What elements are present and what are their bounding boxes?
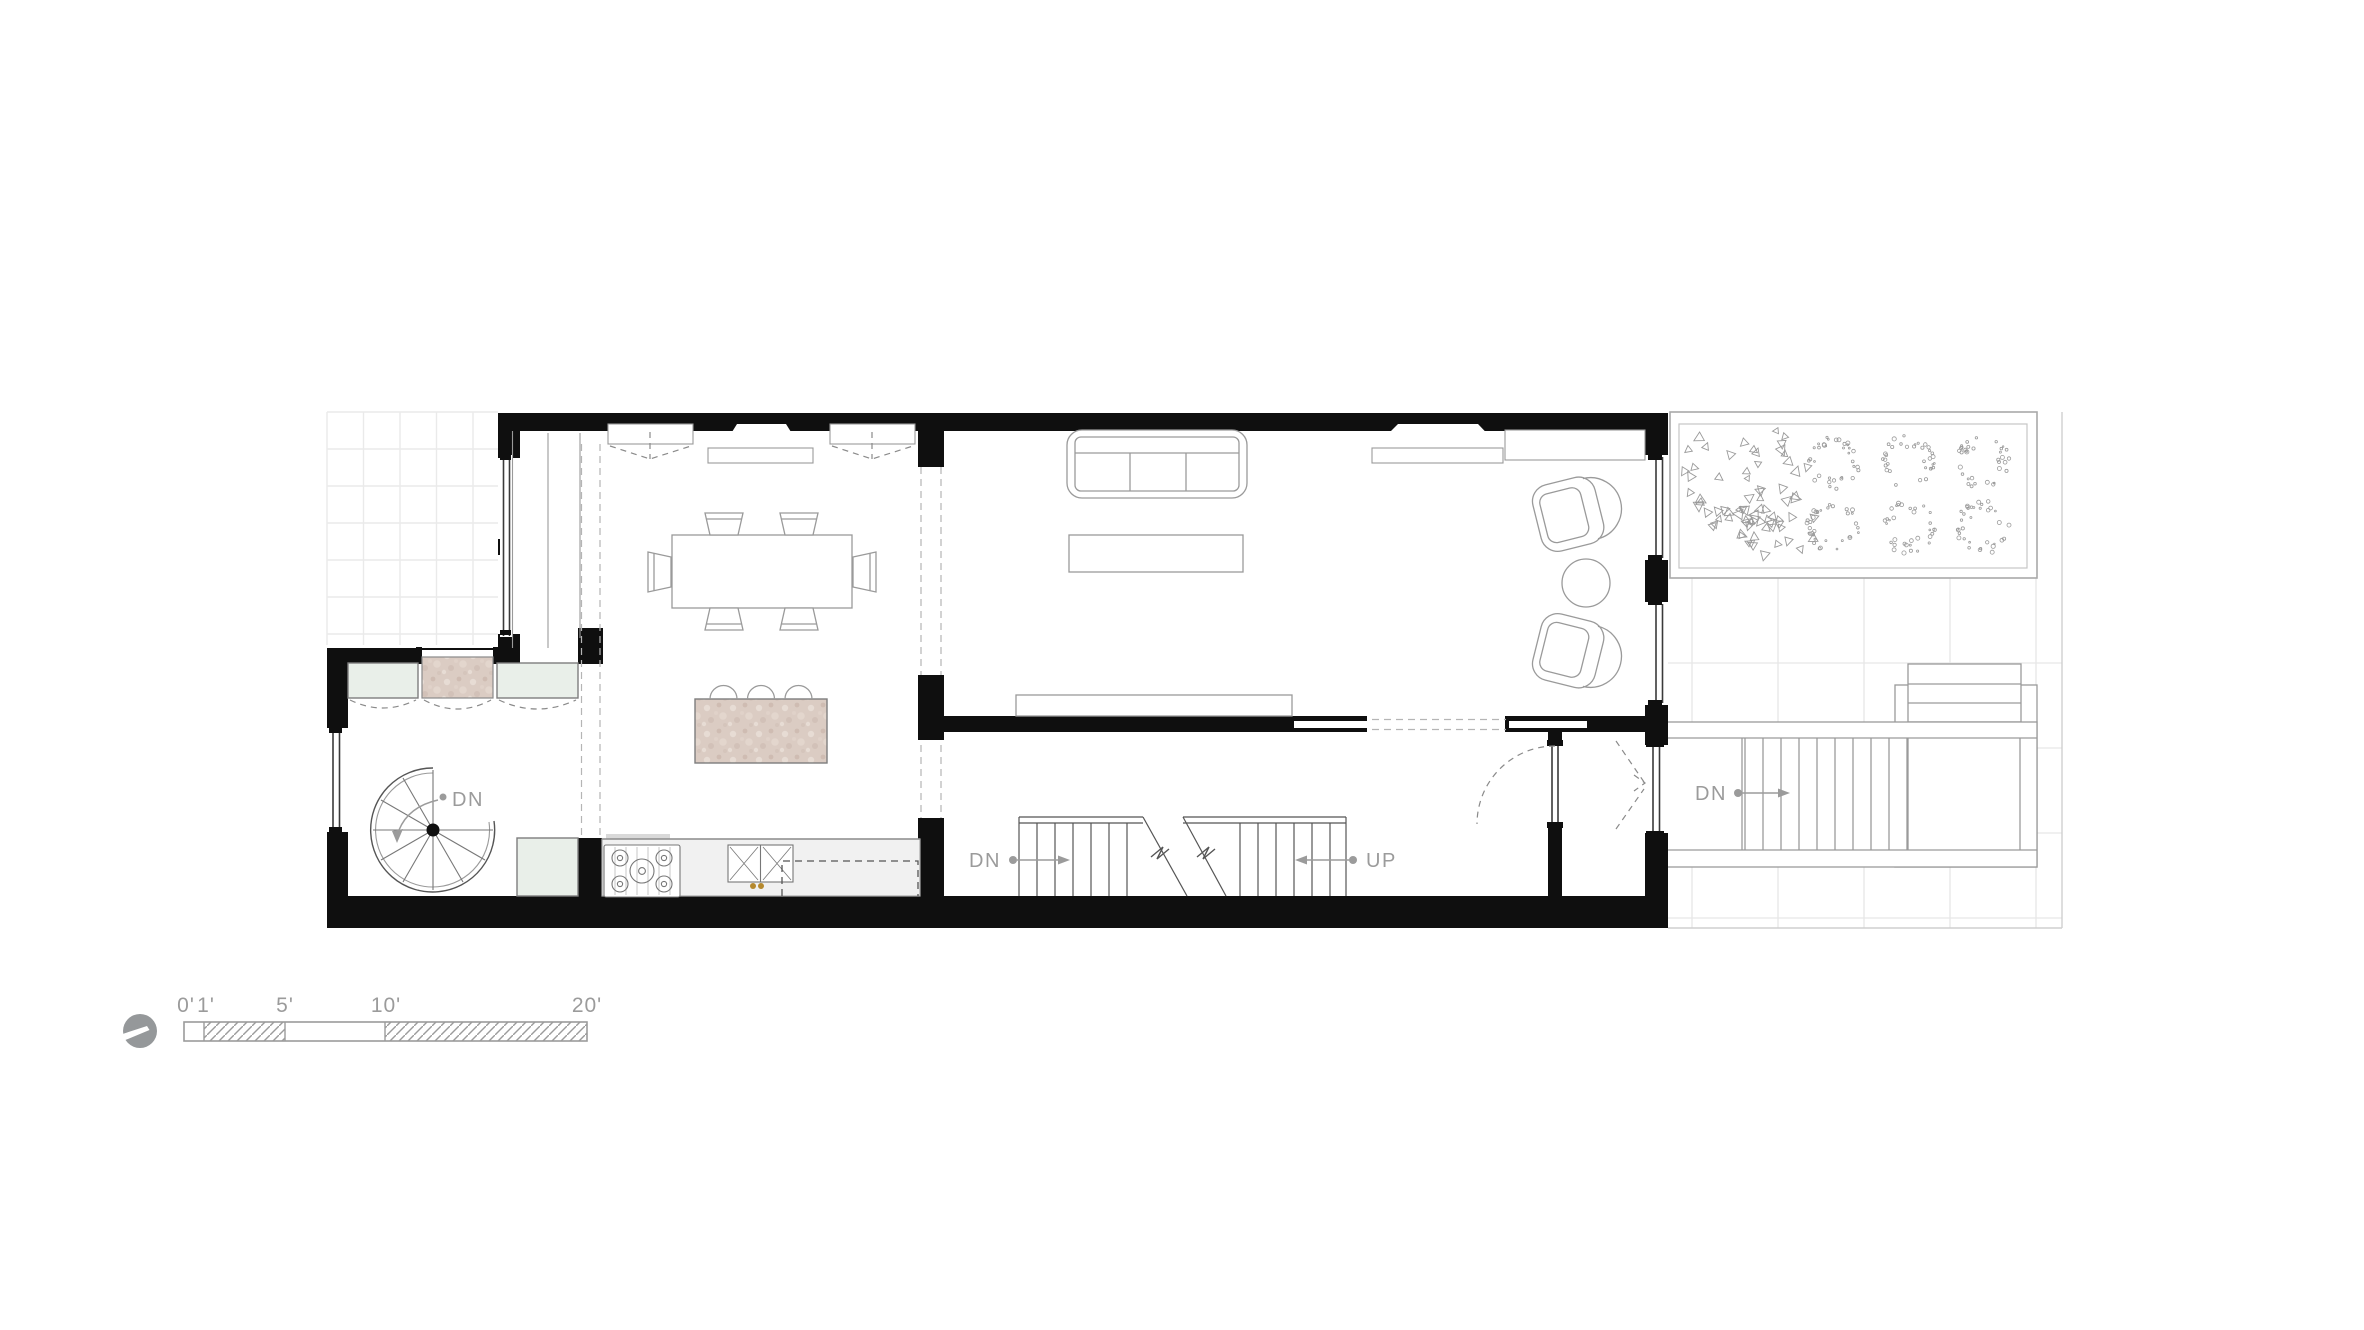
side-table <box>1562 559 1610 607</box>
glass-panel-icon <box>348 663 418 698</box>
garden-dn-label: DN <box>1695 783 1727 805</box>
glass-panel-icon <box>497 663 578 698</box>
sofa-icon <box>1067 430 1247 498</box>
spiral-dn-label: DN <box>452 789 484 811</box>
scale-tick-1: 1' <box>197 994 215 1017</box>
north-arrow-icon <box>121 1014 157 1048</box>
stair-dn-label: DN <box>969 850 1001 872</box>
scale-tick-5: 5' <box>276 994 294 1017</box>
range-icon <box>604 845 680 897</box>
garden-planter <box>1670 412 2037 578</box>
floor-plan-page: DN DN UP DN 0' 1' 5' 10' 20' <box>0 0 2364 1330</box>
media-console <box>1016 695 1292 716</box>
scale-tick-10: 10' <box>371 994 401 1017</box>
pocket-door-icon <box>1509 721 1587 728</box>
glass-panel-icon <box>517 838 578 896</box>
stair-up-label: UP <box>1366 850 1397 872</box>
backsplash <box>606 834 670 839</box>
dining-table <box>672 535 852 608</box>
kitchen-island <box>695 699 827 763</box>
pocket-door-icon <box>1294 721 1370 728</box>
scale-tick-0: 0' <box>177 994 195 1017</box>
scale-bar: 0' 1' 5' 10' 20' <box>177 994 602 1041</box>
coffee-table <box>1069 535 1243 572</box>
scale-tick-20: 20' <box>572 994 602 1017</box>
floor-plan-drawing: DN DN UP DN 0' 1' 5' 10' 20' <box>0 0 2364 1330</box>
stone-threshold <box>422 657 493 698</box>
sink-icon <box>728 845 793 889</box>
rear-door-icon <box>1648 745 1664 833</box>
patio-tile-grid <box>327 412 498 645</box>
garden-stair <box>1667 664 2037 867</box>
